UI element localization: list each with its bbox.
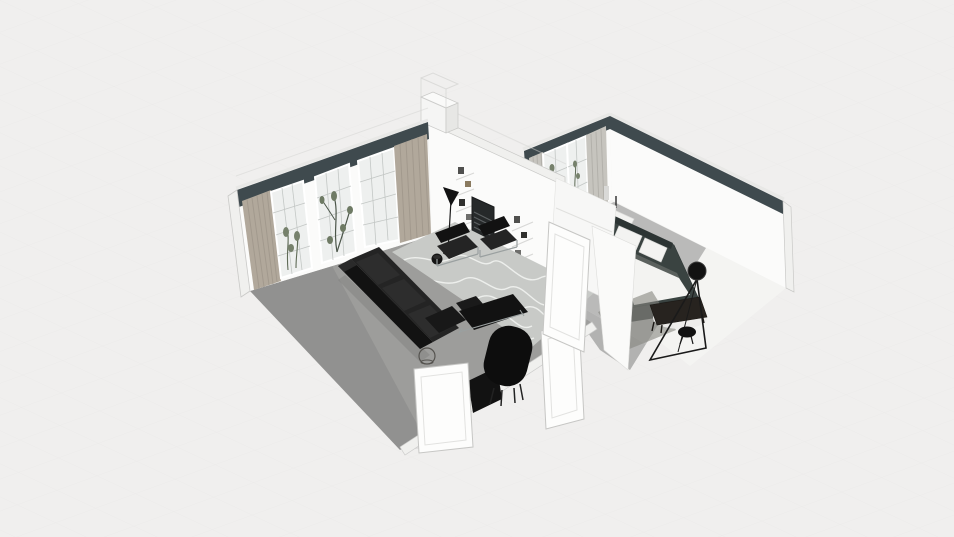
stool-top — [678, 327, 696, 338]
side-table-surface — [433, 255, 441, 259]
living-door-1[interactable] — [414, 363, 473, 453]
floorplan-3d-viewport[interactable] — [0, 0, 954, 537]
bedroom-door[interactable] — [543, 222, 590, 352]
console-vase — [604, 186, 609, 200]
chimney-side — [446, 103, 458, 133]
door-panel — [543, 222, 590, 352]
living-window-3[interactable] — [358, 148, 399, 247]
